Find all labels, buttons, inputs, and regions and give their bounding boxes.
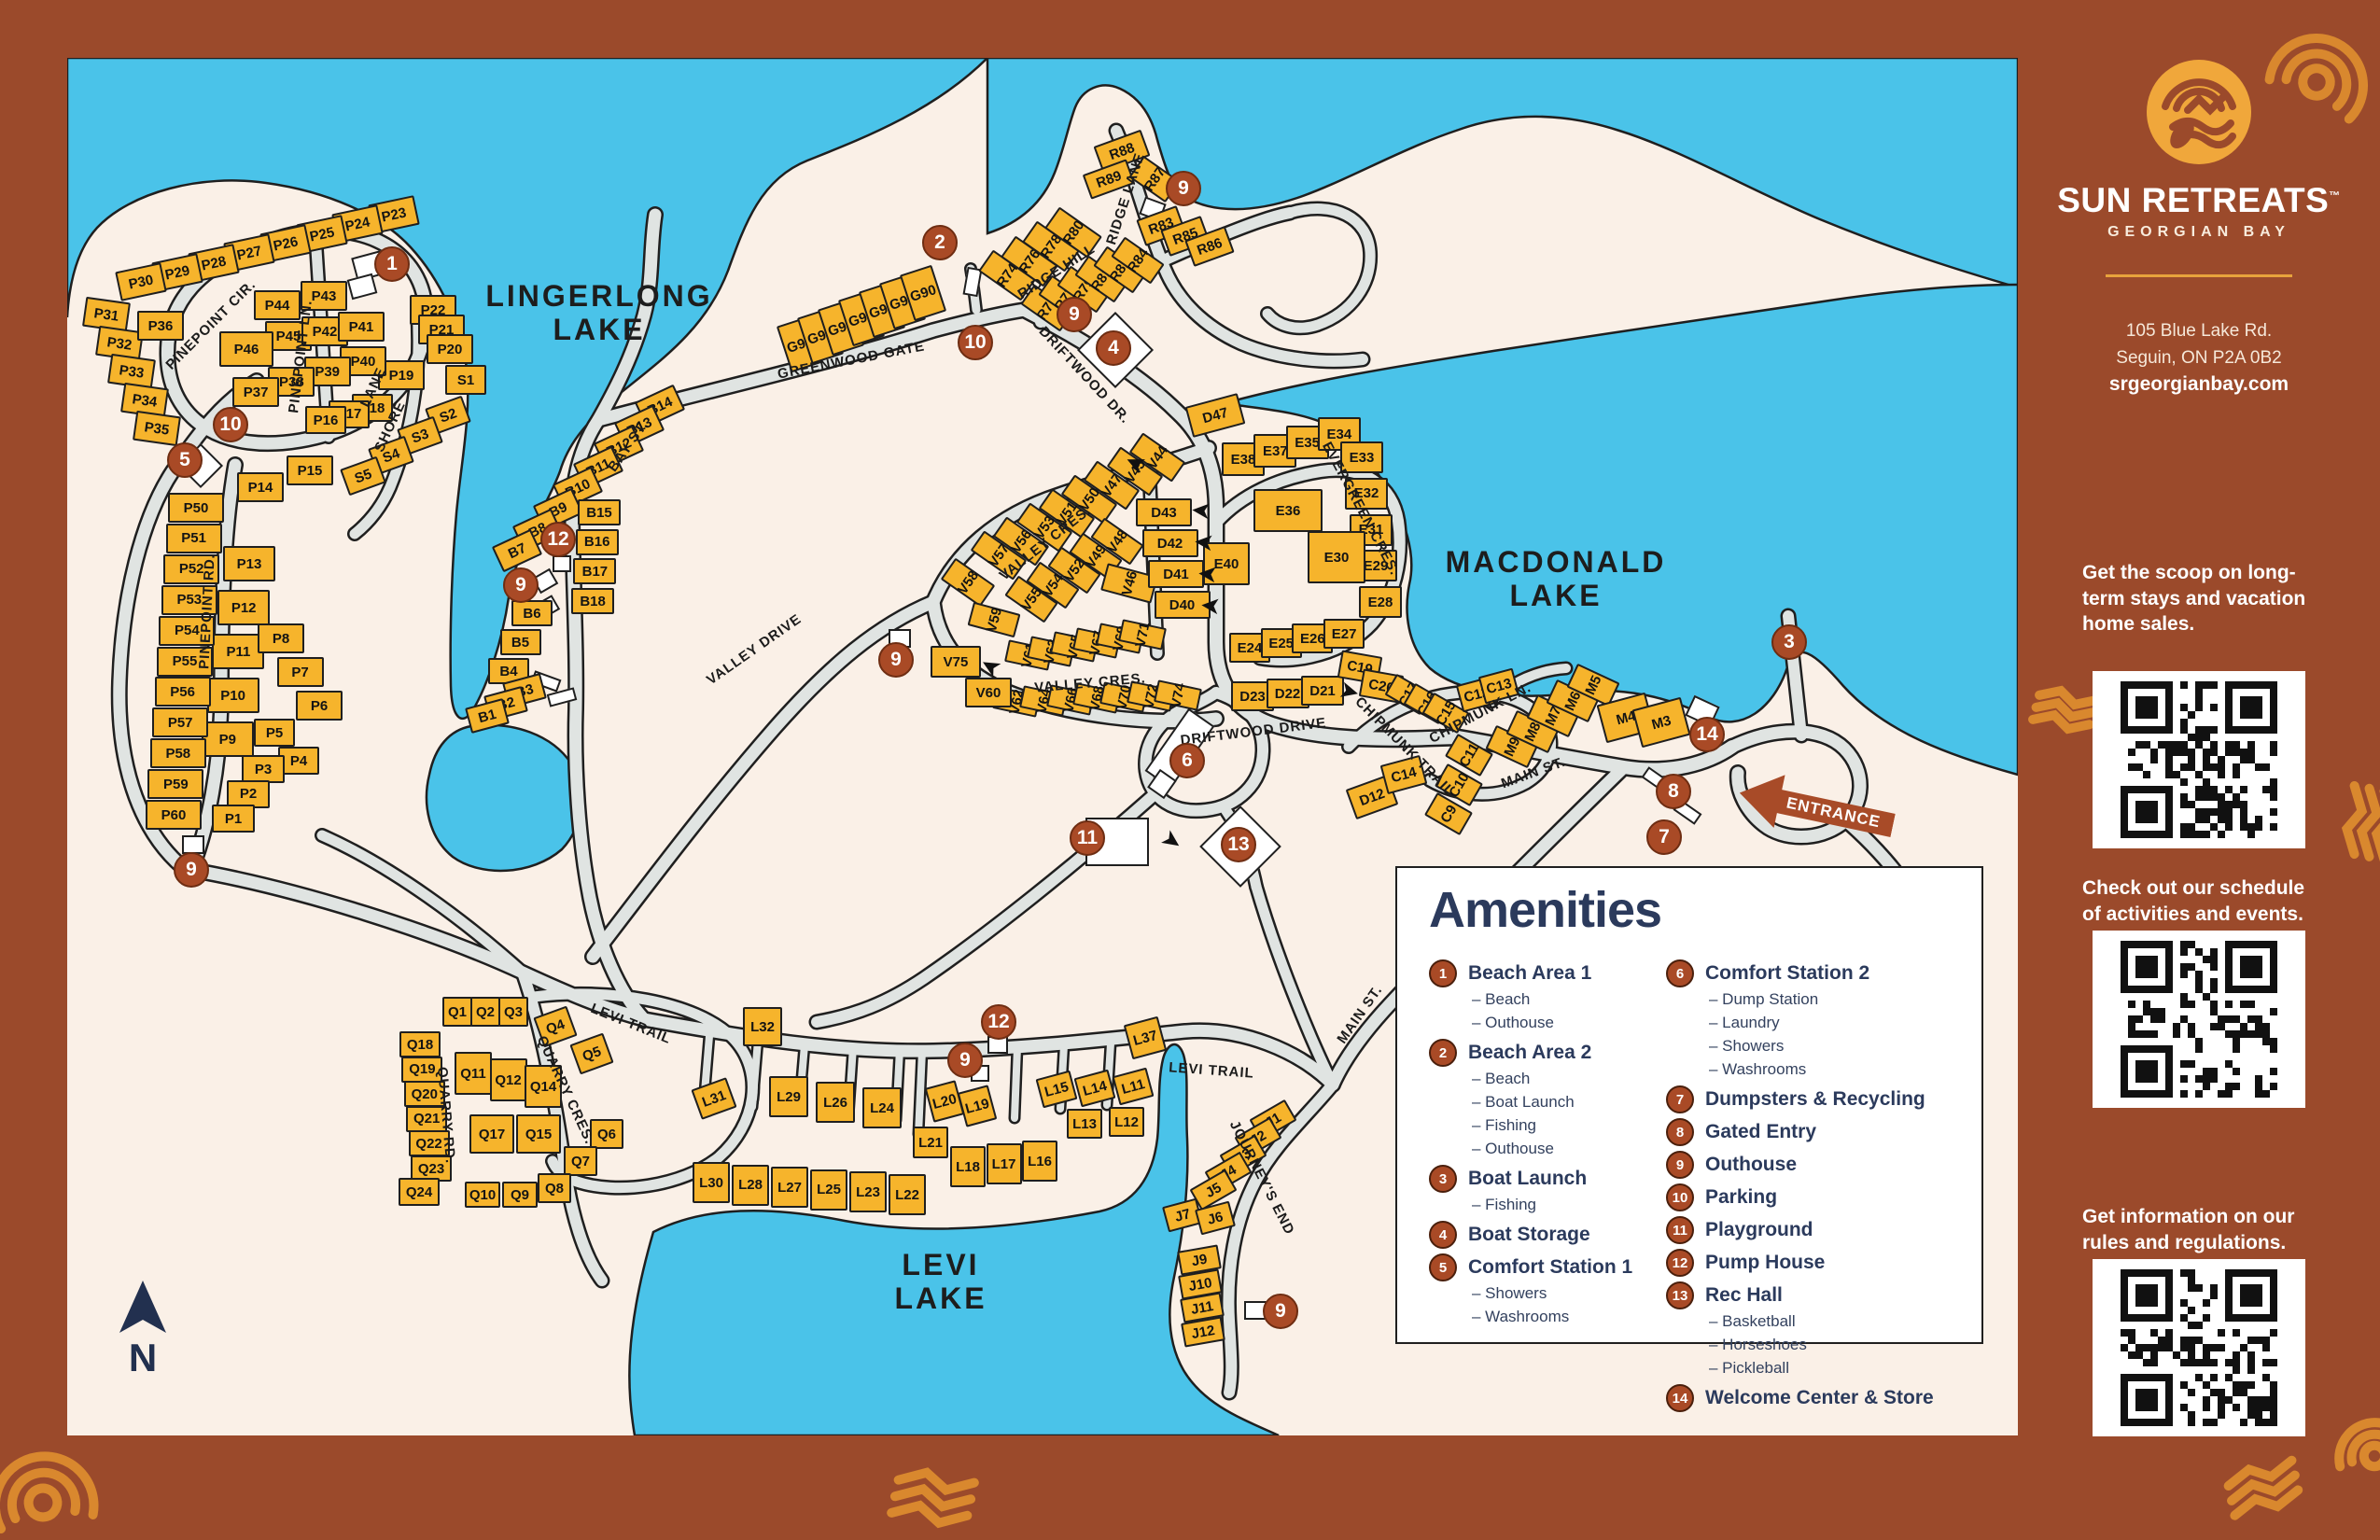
legend-label: Outhouse	[1705, 1154, 1797, 1176]
legend-marker-5: 5	[1429, 1253, 1457, 1281]
amenity-marker-5-2: 5	[167, 442, 203, 478]
legend-item-14: 14Welcome Center & Store	[1666, 1384, 1974, 1412]
brand-name: SUN RETREATS™	[2018, 181, 2380, 220]
lot-L30: L30	[693, 1162, 730, 1203]
legend-item-13: 13Rec Hall– Basketball– Horseshoes– Pick…	[1666, 1281, 1974, 1379]
amenity-marker-9-6: 9	[1057, 297, 1092, 332]
legend-sub-item: – Showers	[1666, 1034, 1974, 1057]
lot-P11: P11	[212, 634, 264, 669]
lot-P41: P41	[338, 312, 385, 342]
lot-P1: P1	[212, 805, 255, 833]
lot-Q2: Q2	[470, 997, 500, 1027]
lot-P7: P7	[277, 657, 324, 687]
amenity-marker-10-7: 10	[958, 325, 993, 360]
qr-box-1	[2093, 671, 2305, 848]
amenity-marker-9-21: 9	[1263, 1294, 1298, 1329]
lot-B6: B6	[511, 600, 553, 626]
lot-D41: D41	[1148, 560, 1204, 588]
lot-P46: P46	[219, 331, 273, 367]
legend-marker-2: 2	[1429, 1039, 1457, 1067]
legend-title: Amenities	[1429, 881, 1981, 939]
lake-label-levi: LEVI LAKE	[894, 1249, 987, 1316]
legend-item-head: 11Playground	[1666, 1216, 1974, 1244]
legend-column-2: 6Comfort Station 2– Dump Station– Laundr…	[1666, 959, 1974, 1417]
legend-sub-item: – Outhouse	[1429, 1137, 1662, 1160]
legend-item-head: 5Comfort Station 1	[1429, 1253, 1662, 1281]
lot-B15: B15	[578, 499, 621, 525]
lot-L27: L27	[771, 1167, 808, 1208]
sidebar: SUN RETREATS™ GEORGIAN BAY 105 Blue Lake…	[2018, 0, 2380, 1540]
legend-label: Rec Hall	[1705, 1284, 1783, 1307]
legend-sub-item: – Fishing	[1429, 1113, 1662, 1137]
legend-item-7: 7Dumpsters & Recycling	[1666, 1085, 1974, 1113]
lot-P37: P37	[232, 377, 279, 407]
legend-item-head: 4Boat Storage	[1429, 1221, 1662, 1249]
legend-sub-item: – Horseshoes	[1666, 1333, 1974, 1356]
lot-P36: P36	[137, 311, 184, 341]
one-way-arrow-icon: ➤	[1199, 594, 1222, 620]
legend-label: Gated Entry	[1705, 1121, 1816, 1143]
legend-sub-item: – Basketball	[1666, 1309, 1974, 1333]
legend-sub-item: – Showers	[1429, 1281, 1662, 1305]
legend-marker-10: 10	[1666, 1183, 1694, 1211]
legend-sub-item: – Dump Station	[1666, 987, 1974, 1011]
legend-label: Dumpsters & Recycling	[1705, 1088, 1925, 1111]
legend-sub-item: – Washrooms	[1429, 1305, 1662, 1328]
lot-Q8: Q8	[538, 1173, 571, 1203]
legend-item-head: 3Boat Launch	[1429, 1165, 1662, 1193]
amenity-marker-12-19: 12	[981, 1004, 1016, 1040]
legend-label: Boat Launch	[1468, 1168, 1587, 1190]
amenity-marker-10-1: 10	[213, 407, 248, 442]
qr-code-icon	[2121, 681, 2277, 838]
amenity-marker-9-11: 9	[878, 642, 914, 678]
legend-item-5: 5Comfort Station 1– Showers– Washrooms	[1429, 1253, 1662, 1328]
trademark: ™	[2329, 189, 2341, 203]
lot-P59: P59	[147, 769, 203, 799]
lot-P5: P5	[254, 719, 295, 747]
lot-L22: L22	[889, 1174, 926, 1215]
legend-item-head: 2Beach Area 2	[1429, 1039, 1662, 1067]
legend-sub-item: – Laundry	[1666, 1011, 1974, 1034]
legend-marker-8: 8	[1666, 1118, 1694, 1146]
qr-box-2	[2093, 931, 2305, 1108]
legend-item-9: 9Outhouse	[1666, 1151, 1974, 1179]
legend-marker-1: 1	[1429, 959, 1457, 987]
one-way-arrow-icon: ➤	[1193, 530, 1215, 556]
legend-item-head: 9Outhouse	[1666, 1151, 1974, 1179]
legend-item-1: 1Beach Area 1– Beach– Outhouse	[1429, 959, 1662, 1034]
amenity-marker-2-4: 2	[922, 225, 958, 260]
address-line-1: 105 Blue Lake Rd.	[2018, 318, 2380, 345]
legend-item-head: 14Welcome Center & Store	[1666, 1384, 1974, 1412]
lot-P9: P9	[202, 721, 254, 757]
amenity-marker-11-13: 11	[1070, 820, 1105, 856]
legend-label: Boat Storage	[1468, 1224, 1590, 1246]
legend-sub-item: – Pickleball	[1666, 1356, 1974, 1379]
amenity-marker-4-8: 4	[1096, 330, 1131, 366]
legend-item-3: 3Boat Launch– Fishing	[1429, 1165, 1662, 1216]
lot-L18: L18	[950, 1146, 986, 1187]
legend-item-head: 7Dumpsters & Recycling	[1666, 1085, 1974, 1113]
amenity-marker-9-3: 9	[174, 852, 209, 888]
legend-item-8: 8Gated Entry	[1666, 1118, 1974, 1146]
lot-P8: P8	[258, 623, 304, 653]
lot-E36: E36	[1253, 489, 1323, 532]
lot-L17: L17	[987, 1143, 1022, 1184]
legend-sub-item: – Fishing	[1429, 1193, 1662, 1216]
legend-marker-12: 12	[1666, 1249, 1694, 1277]
legend-sub-item: – Washrooms	[1666, 1057, 1974, 1081]
legend-column-1: 1Beach Area 1– Beach– Outhouse2Beach Are…	[1429, 959, 1662, 1333]
lake-label-lingerlong: LINGERLONG LAKE	[485, 280, 712, 347]
lot-S1: S1	[445, 365, 486, 395]
lot-L13: L13	[1067, 1109, 1102, 1139]
building-rect-11	[182, 835, 204, 854]
qr-section-3: Get information on our rules and regulat…	[2018, 1204, 2380, 1436]
amenity-marker-8-17: 8	[1656, 774, 1691, 809]
north-label: N	[110, 1336, 175, 1380]
amenity-marker-3-15: 3	[1771, 624, 1807, 660]
lot-P58: P58	[150, 738, 206, 768]
lot-P56: P56	[155, 677, 211, 707]
amenity-marker-9-20: 9	[947, 1043, 983, 1078]
legend-item-2: 2Beach Area 2– Beach– Boat Launch– Fishi…	[1429, 1039, 1662, 1160]
legend-label: Comfort Station 1	[1468, 1256, 1632, 1279]
lot-D43: D43	[1136, 498, 1192, 526]
legend-sub-item: – Beach	[1429, 987, 1662, 1011]
lot-L29: L29	[769, 1076, 808, 1117]
lot-L12: L12	[1109, 1107, 1144, 1137]
lot-P10: P10	[207, 678, 259, 713]
legend-marker-6: 6	[1666, 959, 1694, 987]
qr-caption-2: Check out our schedule of activities and…	[2082, 875, 2316, 927]
legend-label: Playground	[1705, 1219, 1813, 1241]
legend-label: Beach Area 1	[1468, 962, 1591, 985]
lot-P44: P44	[254, 290, 301, 320]
legend-marker-7: 7	[1666, 1085, 1694, 1113]
amenity-marker-7-18: 7	[1646, 819, 1682, 855]
building-rect-17	[553, 555, 571, 572]
legend-label: Parking	[1705, 1186, 1777, 1209]
lot-E30: E30	[1308, 531, 1365, 583]
amenity-marker-9-5: 9	[1166, 171, 1201, 206]
legend-item-12: 12Pump House	[1666, 1249, 1974, 1277]
lot-E28: E28	[1359, 586, 1402, 618]
legend-label: Comfort Station 2	[1705, 962, 1869, 985]
qr-section-2: Check out our schedule of activities and…	[2018, 875, 2380, 1108]
campground-map-poster: { "colors":{"bg":"#9B4A2B","panel":"#FAF…	[0, 0, 2380, 1540]
legend-item-4: 4Boat Storage	[1429, 1221, 1662, 1249]
amenity-marker-14-16: 14	[1689, 717, 1725, 752]
lot-B5: B5	[500, 629, 541, 655]
legend-item-head: 1Beach Area 1	[1429, 959, 1662, 987]
lot-L16: L16	[1022, 1141, 1057, 1182]
qr-box-3	[2093, 1259, 2305, 1436]
website-url: srgeorgianbay.com	[2018, 373, 2380, 396]
qr-caption-3: Get information on our rules and regulat…	[2082, 1204, 2316, 1255]
lot-V75: V75	[931, 646, 981, 678]
lot-P20: P20	[427, 334, 473, 364]
qr-caption-1: Get the scoop on long-term stays and vac…	[2082, 560, 2316, 637]
lot-D42: D42	[1142, 529, 1198, 557]
lot-Q3: Q3	[498, 997, 528, 1027]
lot-P13: P13	[223, 546, 275, 581]
legend-item-11: 11Playground	[1666, 1216, 1974, 1244]
legend-item-head: 12Pump House	[1666, 1249, 1974, 1277]
lot-P14: P14	[237, 472, 284, 502]
legend-marker-4: 4	[1429, 1221, 1457, 1249]
lot-Q12: Q12	[490, 1058, 527, 1101]
legend-item-head: 8Gated Entry	[1666, 1118, 1974, 1146]
one-way-arrow-icon: ➤	[1190, 498, 1212, 525]
legend-marker-11: 11	[1666, 1216, 1694, 1244]
lake-label-macdonald: MACDONALD LAKE	[1446, 546, 1667, 613]
legend-marker-13: 13	[1666, 1281, 1694, 1309]
qr-section-1: Get the scoop on long-term stays and vac…	[2018, 560, 2380, 848]
legend-label: Welcome Center & Store	[1705, 1387, 1934, 1409]
lot-B18: B18	[571, 588, 614, 614]
lot-Q7: Q7	[564, 1146, 597, 1176]
lot-P51: P51	[166, 524, 222, 553]
lot-P15: P15	[287, 455, 333, 485]
lot-P3: P3	[242, 755, 285, 783]
lot-Q17: Q17	[469, 1114, 514, 1154]
qr-code-icon	[2121, 1269, 2277, 1426]
lot-P50: P50	[168, 493, 224, 523]
qr-code-icon	[2121, 941, 2277, 1098]
lot-P16: P16	[305, 406, 346, 434]
amenity-marker-6-12: 6	[1169, 743, 1205, 778]
lot-L23: L23	[849, 1171, 887, 1212]
legend-sub-item: – Boat Launch	[1429, 1090, 1662, 1113]
legend-marker-9: 9	[1666, 1151, 1694, 1179]
legend-marker-14: 14	[1666, 1384, 1694, 1412]
north-arrow-icon	[110, 1279, 175, 1337]
legend-item-10: 10Parking	[1666, 1183, 1974, 1211]
lot-P2: P2	[227, 780, 270, 808]
lot-Q1: Q1	[442, 997, 472, 1027]
legend-item-head: 6Comfort Station 2	[1666, 959, 1974, 987]
lot-Q10: Q10	[465, 1182, 500, 1208]
lot-P35: P35	[133, 411, 181, 446]
amenity-marker-13-14: 13	[1221, 827, 1256, 862]
legend-label: Beach Area 2	[1468, 1042, 1591, 1064]
amenity-marker-1-0: 1	[374, 246, 410, 282]
lot-P6: P6	[296, 691, 343, 721]
lot-P12: P12	[217, 590, 270, 625]
amenity-marker-12-9: 12	[540, 522, 576, 557]
lot-B17: B17	[573, 558, 616, 584]
lot-L21: L21	[913, 1127, 948, 1158]
lot-L24: L24	[862, 1087, 902, 1128]
legend-sub-item: – Outhouse	[1429, 1011, 1662, 1034]
brand-region: GEORGIAN BAY	[2018, 224, 2380, 241]
lot-Q18: Q18	[399, 1031, 441, 1057]
amenities-legend: Amenities 1Beach Area 1– Beach– Outhouse…	[1395, 866, 1983, 1344]
lot-P60: P60	[146, 800, 202, 830]
lot-L32: L32	[743, 1007, 782, 1046]
lot-B16: B16	[576, 529, 619, 555]
lot-P57: P57	[152, 707, 208, 737]
legend-item-head: 13Rec Hall	[1666, 1281, 1974, 1309]
one-way-arrow-icon: ➤	[1197, 562, 1219, 588]
sidebar-divider	[2106, 274, 2292, 277]
address-line-2: Seguin, ON P2A 0B2	[2018, 345, 2380, 372]
lot-Q9: Q9	[502, 1182, 538, 1208]
lot-Q11: Q11	[455, 1052, 492, 1095]
lot-E27: E27	[1323, 619, 1365, 649]
lot-L28: L28	[732, 1165, 769, 1206]
lot-L26: L26	[816, 1082, 855, 1123]
legend-marker-3: 3	[1429, 1165, 1457, 1193]
legend-item-head: 10Parking	[1666, 1183, 1974, 1211]
sun-retreats-logo-icon	[2141, 54, 2257, 170]
amenity-marker-9-10: 9	[503, 567, 539, 603]
lot-L25: L25	[810, 1169, 847, 1211]
lot-Q24: Q24	[399, 1178, 440, 1206]
legend-label: Pump House	[1705, 1252, 1825, 1274]
lot-Q15: Q15	[516, 1114, 561, 1154]
legend-sub-item: – Beach	[1429, 1067, 1662, 1090]
legend-item-6: 6Comfort Station 2– Dump Station– Laundr…	[1666, 959, 1974, 1081]
north-indicator: N	[110, 1279, 175, 1380]
